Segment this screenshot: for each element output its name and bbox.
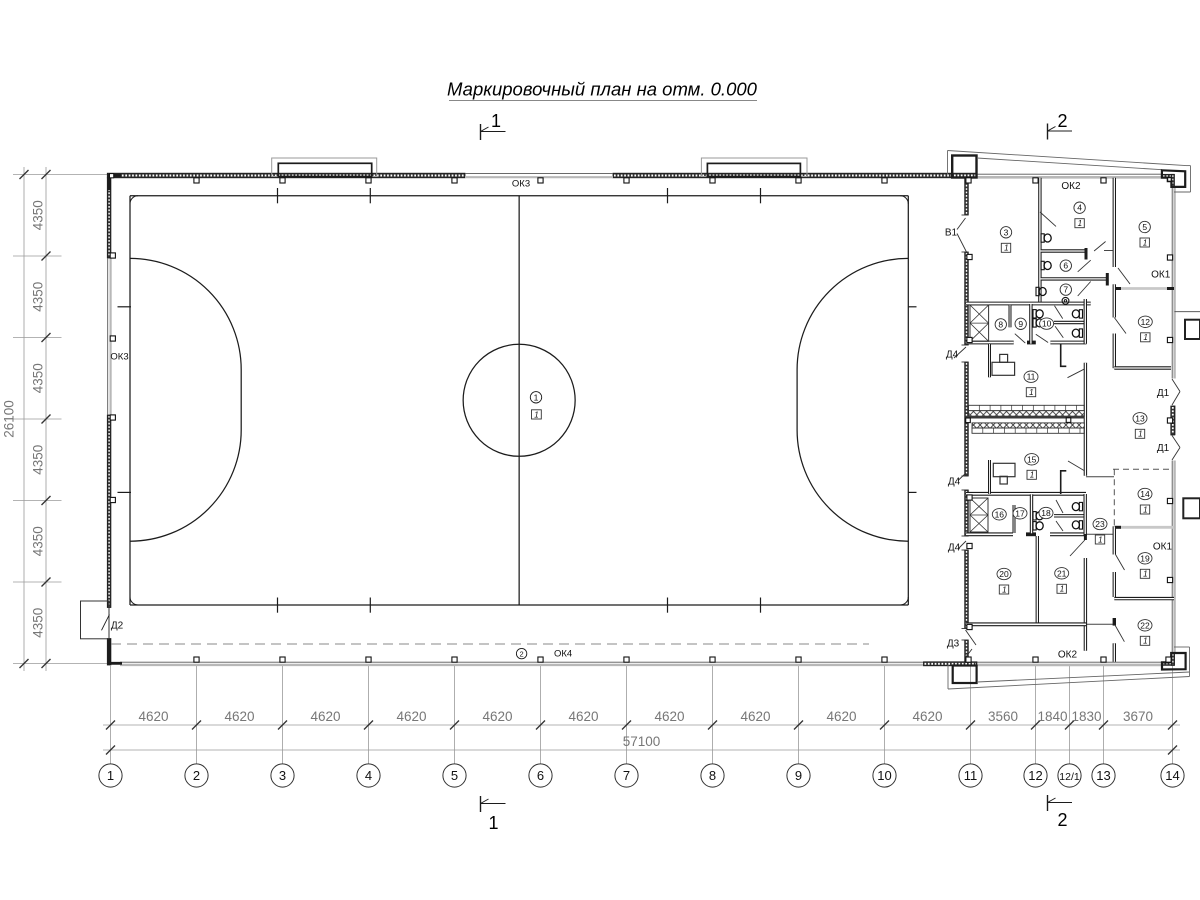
svg-text:15: 15 (1027, 454, 1037, 464)
svg-text:Д2: Д2 (111, 621, 124, 632)
svg-text:1: 1 (1143, 333, 1147, 342)
svg-text:4620: 4620 (826, 709, 856, 724)
svg-text:18: 18 (1041, 508, 1051, 518)
svg-text:12: 12 (1028, 768, 1042, 783)
svg-text:ОК1: ОК1 (1153, 542, 1173, 553)
svg-text:ОК2: ОК2 (1058, 650, 1078, 661)
svg-text:4350: 4350 (31, 608, 46, 638)
svg-text:12: 12 (1141, 317, 1151, 327)
svg-text:Д3: Д3 (947, 639, 960, 650)
svg-text:4620: 4620 (138, 709, 168, 724)
svg-text:ОК2: ОК2 (1061, 181, 1081, 192)
svg-text:ОК1: ОК1 (1151, 270, 1171, 281)
svg-text:5: 5 (1142, 222, 1147, 232)
svg-text:3: 3 (279, 768, 286, 783)
svg-text:1: 1 (1004, 244, 1008, 253)
svg-text:8: 8 (709, 768, 716, 783)
svg-text:1: 1 (1060, 585, 1064, 594)
svg-text:В1: В1 (945, 228, 958, 239)
svg-text:9: 9 (795, 768, 802, 783)
svg-text:4350: 4350 (31, 526, 46, 556)
svg-text:1: 1 (491, 111, 501, 131)
svg-text:21: 21 (1057, 568, 1067, 578)
svg-text:57100: 57100 (623, 734, 661, 749)
svg-text:3: 3 (1004, 227, 1009, 237)
svg-text:4620: 4620 (912, 709, 942, 724)
svg-text:2: 2 (520, 650, 524, 659)
svg-text:1830: 1830 (1071, 709, 1101, 724)
svg-text:6: 6 (1063, 261, 1068, 271)
svg-text:2: 2 (193, 768, 200, 783)
svg-text:4350: 4350 (31, 445, 46, 475)
svg-text:ОК4: ОК4 (554, 649, 572, 660)
svg-text:ОК3: ОК3 (512, 179, 530, 190)
svg-text:1: 1 (107, 768, 114, 783)
svg-text:22: 22 (1140, 620, 1150, 630)
svg-text:Маркировочный план на отм. 0.0: Маркировочный план на отм. 0.000 (447, 79, 758, 100)
svg-text:9: 9 (1018, 319, 1023, 329)
svg-text:3560: 3560 (988, 709, 1018, 724)
svg-text:1840: 1840 (1037, 709, 1067, 724)
svg-text:23: 23 (1095, 519, 1105, 529)
svg-text:16: 16 (995, 509, 1005, 519)
svg-text:2: 2 (1057, 111, 1067, 131)
svg-text:4620: 4620 (310, 709, 340, 724)
svg-text:1: 1 (1138, 430, 1142, 439)
svg-text:10: 10 (877, 768, 891, 783)
svg-text:4620: 4620 (482, 709, 512, 724)
svg-text:1: 1 (1002, 585, 1006, 594)
svg-text:14: 14 (1140, 489, 1150, 499)
svg-text:11: 11 (1027, 372, 1036, 382)
svg-text:4: 4 (1077, 203, 1082, 213)
svg-text:11: 11 (964, 768, 978, 783)
svg-text:6: 6 (537, 768, 544, 783)
svg-text:Д4: Д4 (948, 477, 961, 488)
svg-text:1: 1 (1143, 505, 1147, 514)
svg-text:ОК3: ОК3 (110, 352, 128, 363)
svg-text:14: 14 (1165, 768, 1179, 783)
svg-text:7: 7 (623, 768, 630, 783)
svg-text:12/1: 12/1 (1059, 771, 1080, 783)
svg-text:7: 7 (1063, 285, 1068, 295)
svg-text:3670: 3670 (1123, 709, 1153, 724)
svg-text:1: 1 (1143, 238, 1147, 247)
svg-text:5: 5 (451, 768, 458, 783)
svg-text:1: 1 (1078, 219, 1082, 228)
svg-text:1: 1 (534, 392, 539, 402)
svg-text:13: 13 (1096, 768, 1110, 783)
svg-text:Д1: Д1 (1157, 388, 1170, 399)
svg-text:17: 17 (1015, 508, 1025, 518)
svg-text:10: 10 (1042, 319, 1052, 329)
svg-text:4350: 4350 (31, 363, 46, 393)
svg-text:4: 4 (365, 768, 372, 783)
svg-text:1: 1 (1143, 637, 1147, 646)
svg-text:8: 8 (998, 319, 1003, 329)
svg-text:4620: 4620 (224, 709, 254, 724)
svg-text:Д1: Д1 (1157, 443, 1170, 454)
svg-text:4620: 4620 (740, 709, 770, 724)
svg-text:4350: 4350 (31, 282, 46, 312)
svg-text:1: 1 (1029, 388, 1033, 397)
svg-text:19: 19 (1140, 553, 1150, 563)
svg-text:4350: 4350 (31, 200, 46, 230)
svg-text:Д4: Д4 (946, 350, 959, 361)
svg-text:20: 20 (999, 569, 1009, 579)
svg-text:4620: 4620 (568, 709, 598, 724)
svg-text:1: 1 (488, 813, 498, 833)
svg-text:1: 1 (1098, 535, 1102, 544)
svg-text:1: 1 (534, 410, 538, 419)
svg-text:1: 1 (1143, 570, 1147, 579)
svg-text:2: 2 (1057, 810, 1067, 830)
svg-text:26100: 26100 (2, 400, 17, 438)
svg-text:1: 1 (1030, 471, 1034, 480)
svg-text:4620: 4620 (396, 709, 426, 724)
svg-text:Д4: Д4 (948, 543, 961, 554)
svg-text:13: 13 (1135, 413, 1145, 423)
svg-text:4620: 4620 (654, 709, 684, 724)
